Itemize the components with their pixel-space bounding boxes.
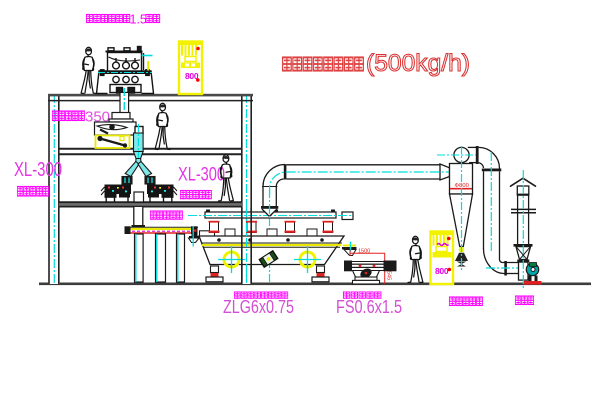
svg-text:1.5: 1.5 bbox=[130, 13, 147, 27]
svg-text:XL-300: XL-300 bbox=[14, 159, 62, 181]
svg-text:ZLG6x0.75: ZLG6x0.75 bbox=[223, 297, 294, 317]
svg-text:FS0.6x1.5: FS0.6x1.5 bbox=[336, 297, 402, 317]
svg-text:(500kg/h): (500kg/h) bbox=[366, 50, 470, 77]
svg-text:545: 545 bbox=[386, 271, 392, 280]
svg-text:800: 800 bbox=[435, 266, 449, 276]
svg-text:1500: 1500 bbox=[358, 248, 370, 254]
svg-text:XL-300: XL-300 bbox=[178, 165, 225, 186]
